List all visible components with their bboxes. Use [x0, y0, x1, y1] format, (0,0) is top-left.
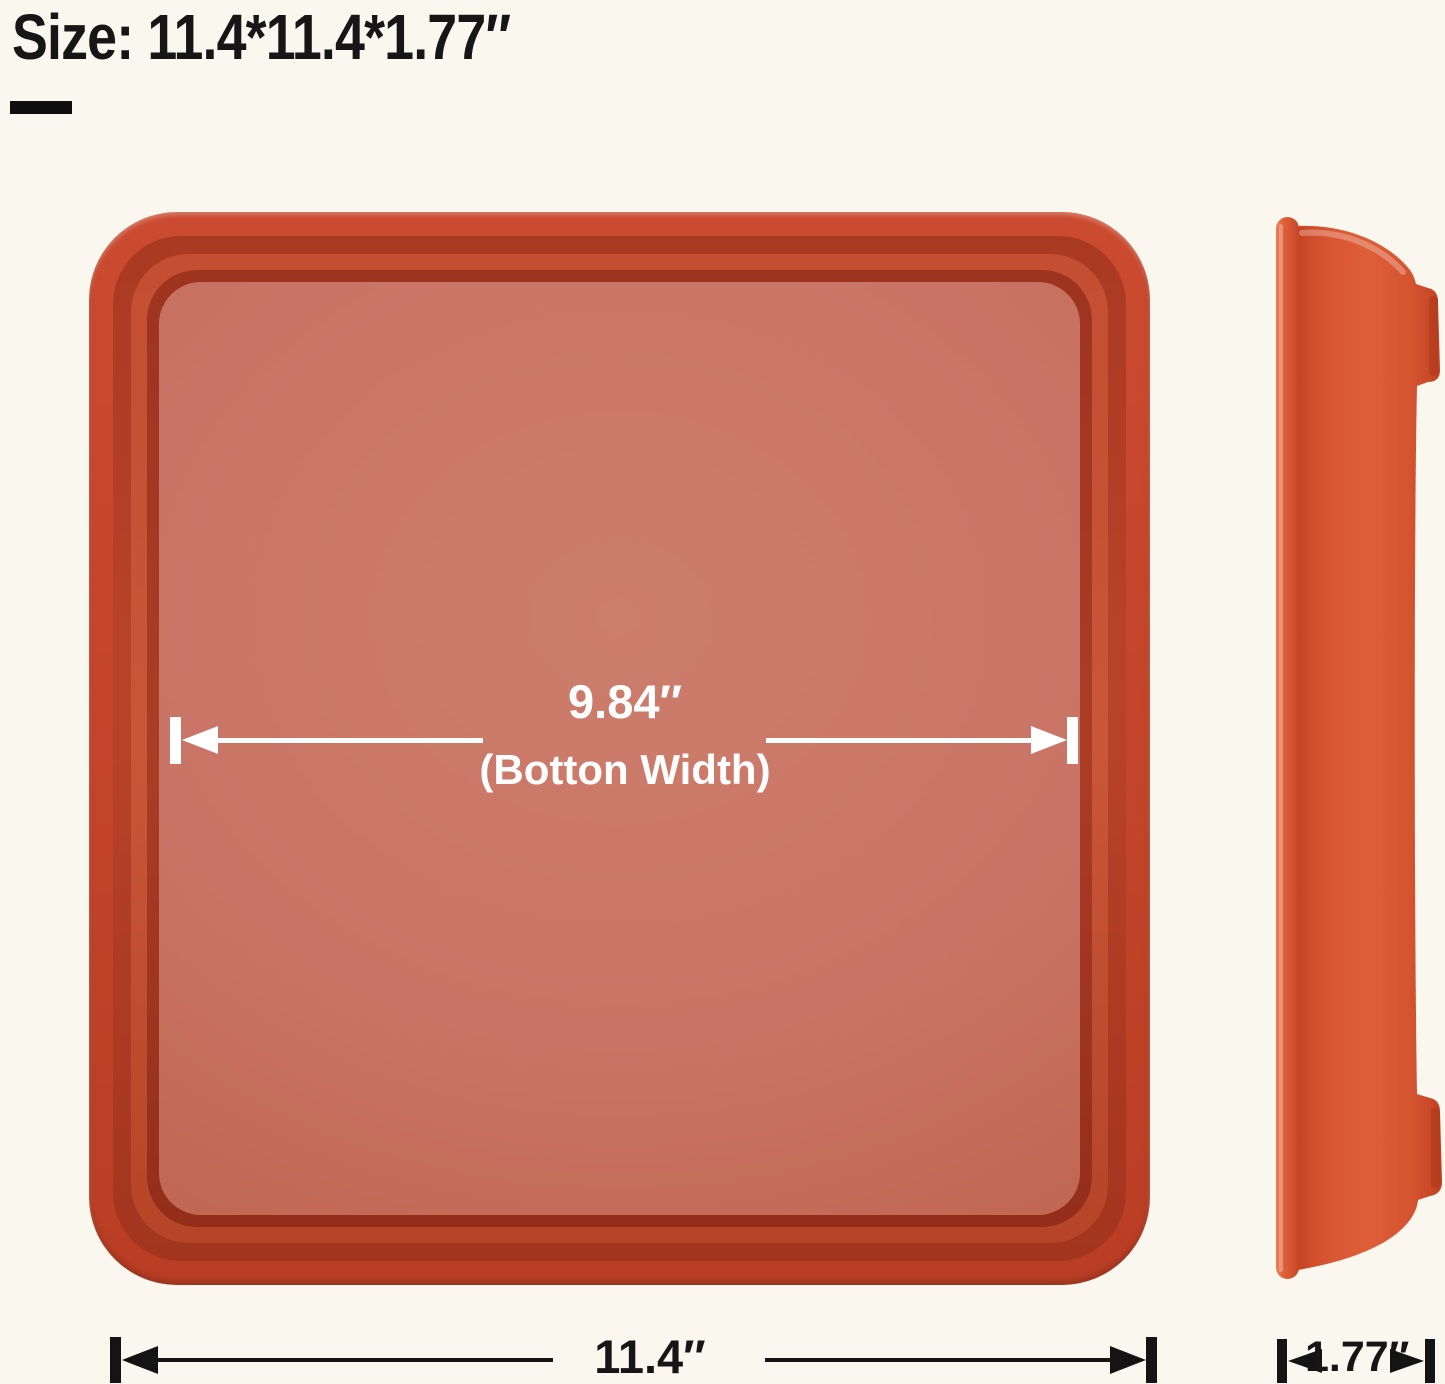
dimension-line-left — [157, 1358, 553, 1362]
side-rim-highlight — [1279, 224, 1283, 1272]
arrow-right-icon — [1390, 1349, 1424, 1373]
arrow-right-icon — [1110, 1346, 1146, 1374]
dimension-cap-right — [1067, 717, 1078, 764]
title-underline — [10, 101, 72, 114]
arrow-left-icon — [122, 1346, 158, 1374]
dimension-line-left — [216, 738, 483, 743]
arrow-right-icon — [1031, 726, 1067, 754]
inner-width-label: (Botton Width) — [400, 748, 850, 792]
arrow-left-icon — [182, 726, 218, 754]
dimension-line-right — [766, 738, 1031, 743]
product-dimension-diagram: Size: 11.4*11.4*1.77″ 9.84″ (Botton Widt… — [0, 0, 1445, 1384]
inner-width-value: 9.84″ — [450, 677, 800, 726]
dimension-cap-right — [1146, 1337, 1157, 1383]
dimension-cap-left — [1277, 1339, 1287, 1383]
page-title: Size: 11.4*11.4*1.77″ — [12, 0, 510, 79]
side-body — [1298, 226, 1442, 1270]
outer-width-value: 11.4″ — [540, 1332, 760, 1381]
side-tab-bottom-shade — [1431, 1108, 1440, 1188]
saucer-side-view — [1270, 210, 1445, 1285]
side-tab-top-shade — [1429, 296, 1438, 376]
dimension-cap-right — [1425, 1339, 1435, 1383]
dimension-cap-left — [170, 717, 181, 764]
dimension-cap-left — [110, 1337, 121, 1383]
dimension-line-right — [765, 1358, 1110, 1362]
